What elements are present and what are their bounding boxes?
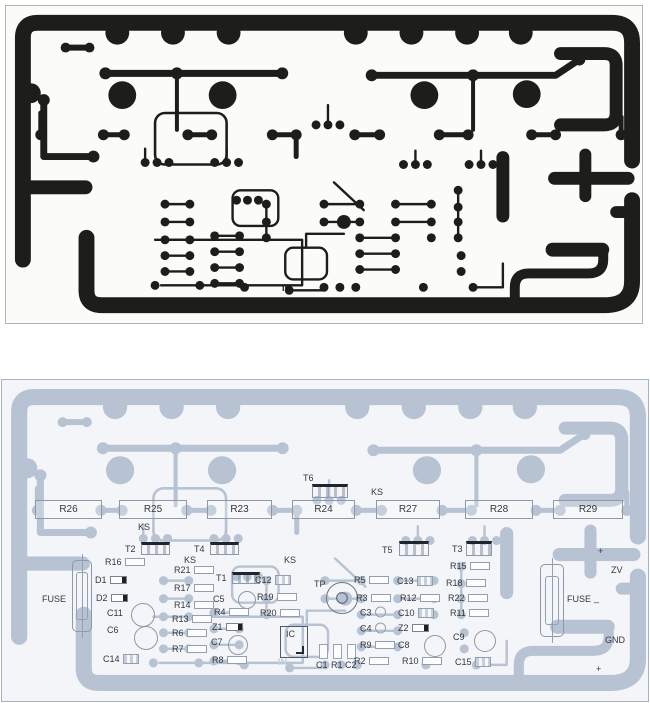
component-KS: KS xyxy=(184,555,196,565)
component-R26: R26 xyxy=(35,500,102,519)
component-R18: R18 xyxy=(446,578,486,588)
component-R27: R27 xyxy=(376,500,440,519)
component-C3: C3 xyxy=(360,607,386,618)
component-C6: C6 xyxy=(107,625,119,635)
fuse-symbol xyxy=(72,560,92,632)
circle-symbol xyxy=(134,626,158,650)
component-TP: TP xyxy=(314,579,326,589)
component-C8: C8 xyxy=(398,640,410,650)
component-IC: IC xyxy=(280,626,308,658)
component-overlay: R26R25R23R24R27R28R29T6T2T4T5T3T1KSKSKSK… xyxy=(2,380,648,701)
component-R15: R15 xyxy=(450,561,490,571)
component-R2: R2 xyxy=(354,656,389,666)
pcb-traces-graphic xyxy=(6,6,642,323)
tsym-symbol xyxy=(466,541,492,556)
component-+: + xyxy=(598,546,603,556)
component-R16: R16 xyxy=(105,557,145,567)
component-Z1: Z1 xyxy=(212,622,243,632)
component-C14: C14 xyxy=(103,654,139,664)
component-R8: R8 xyxy=(212,655,247,665)
component-Z2: Z2 xyxy=(398,623,429,633)
component-C1: C1 xyxy=(316,660,328,670)
component-R5: R5 xyxy=(354,575,389,585)
component-R9: R9 xyxy=(360,640,395,650)
component-C4: C4 xyxy=(360,623,386,634)
component-R24: R24 xyxy=(292,500,355,519)
tsym-symbol xyxy=(210,542,239,555)
circle-symbol xyxy=(228,635,248,655)
in-label: IN xyxy=(282,283,291,293)
component-ZV: ZV xyxy=(611,565,623,575)
component-FUSE: FUSE xyxy=(567,594,591,604)
component-R29: R29 xyxy=(553,500,623,519)
component-FUSE: FUSE xyxy=(42,594,66,604)
circle-symbol xyxy=(424,635,446,657)
component-_: _ xyxy=(594,593,599,603)
component-R21: R21 xyxy=(174,565,214,575)
tsym-symbol xyxy=(399,541,429,556)
component-KS: KS xyxy=(284,555,296,565)
component-C15: C15 xyxy=(455,657,491,667)
component-R11: R11 xyxy=(450,608,489,618)
tpad-symbol xyxy=(326,582,358,614)
component-side-board: IN R26R25R23R24R27R28R29T6T2T4T5T3T1KSKS… xyxy=(1,379,649,702)
component-C5: C5 xyxy=(213,594,225,604)
component-R13: R13 xyxy=(172,614,212,624)
fuse-symbol xyxy=(540,564,564,637)
copper-side-board: IN xyxy=(5,5,643,324)
component-R7: R7 xyxy=(172,644,207,654)
tsym-symbol xyxy=(312,484,348,498)
component-R19: R19 xyxy=(257,592,297,602)
circle-symbol xyxy=(474,630,496,652)
circle-symbol xyxy=(238,591,256,609)
component-R22: R22 xyxy=(448,593,488,603)
component-GND: GND xyxy=(605,635,625,645)
component-T5: T5 xyxy=(382,545,393,555)
component-R23: R23 xyxy=(207,500,272,519)
component-C12: C12 xyxy=(255,575,291,585)
tsym-symbol xyxy=(141,542,170,555)
component-R10: R10 xyxy=(402,656,442,666)
component-D2: D2 xyxy=(96,593,128,603)
component-T3: T3 xyxy=(452,544,463,554)
component-R28: R28 xyxy=(465,500,533,519)
component-C7: C7 xyxy=(211,637,223,647)
component-R3: R3 xyxy=(356,593,391,603)
component-D1: D1 xyxy=(95,575,127,585)
component-T6: T6 xyxy=(303,473,314,483)
vres-symbol xyxy=(319,644,328,659)
component-C11: C11 xyxy=(107,608,123,618)
component-R12: R12 xyxy=(400,593,440,603)
component-C10: C10 xyxy=(398,608,434,618)
component-R6: R6 xyxy=(172,628,207,638)
component-+: + xyxy=(596,664,601,674)
component-T1: T1 xyxy=(216,573,227,583)
component-R14: R14 xyxy=(174,600,214,610)
component-T4: T4 xyxy=(194,544,205,554)
component-R1: R1 xyxy=(331,660,343,670)
vres-symbol xyxy=(333,644,342,659)
component-KS: KS xyxy=(371,487,383,497)
component-C9: C9 xyxy=(453,632,465,642)
component-T2: T2 xyxy=(125,544,136,554)
component-KS: KS xyxy=(138,522,150,532)
pcb-layout-page: IN IN R26R25R23R24R27R28R29T6T2T4T5T3T1K… xyxy=(0,0,650,703)
component-C13: C13 xyxy=(397,576,433,586)
component-R25: R25 xyxy=(119,500,187,519)
component-R20: R20 xyxy=(260,608,300,618)
component-R17: R17 xyxy=(174,583,214,593)
circle-symbol xyxy=(131,603,155,627)
